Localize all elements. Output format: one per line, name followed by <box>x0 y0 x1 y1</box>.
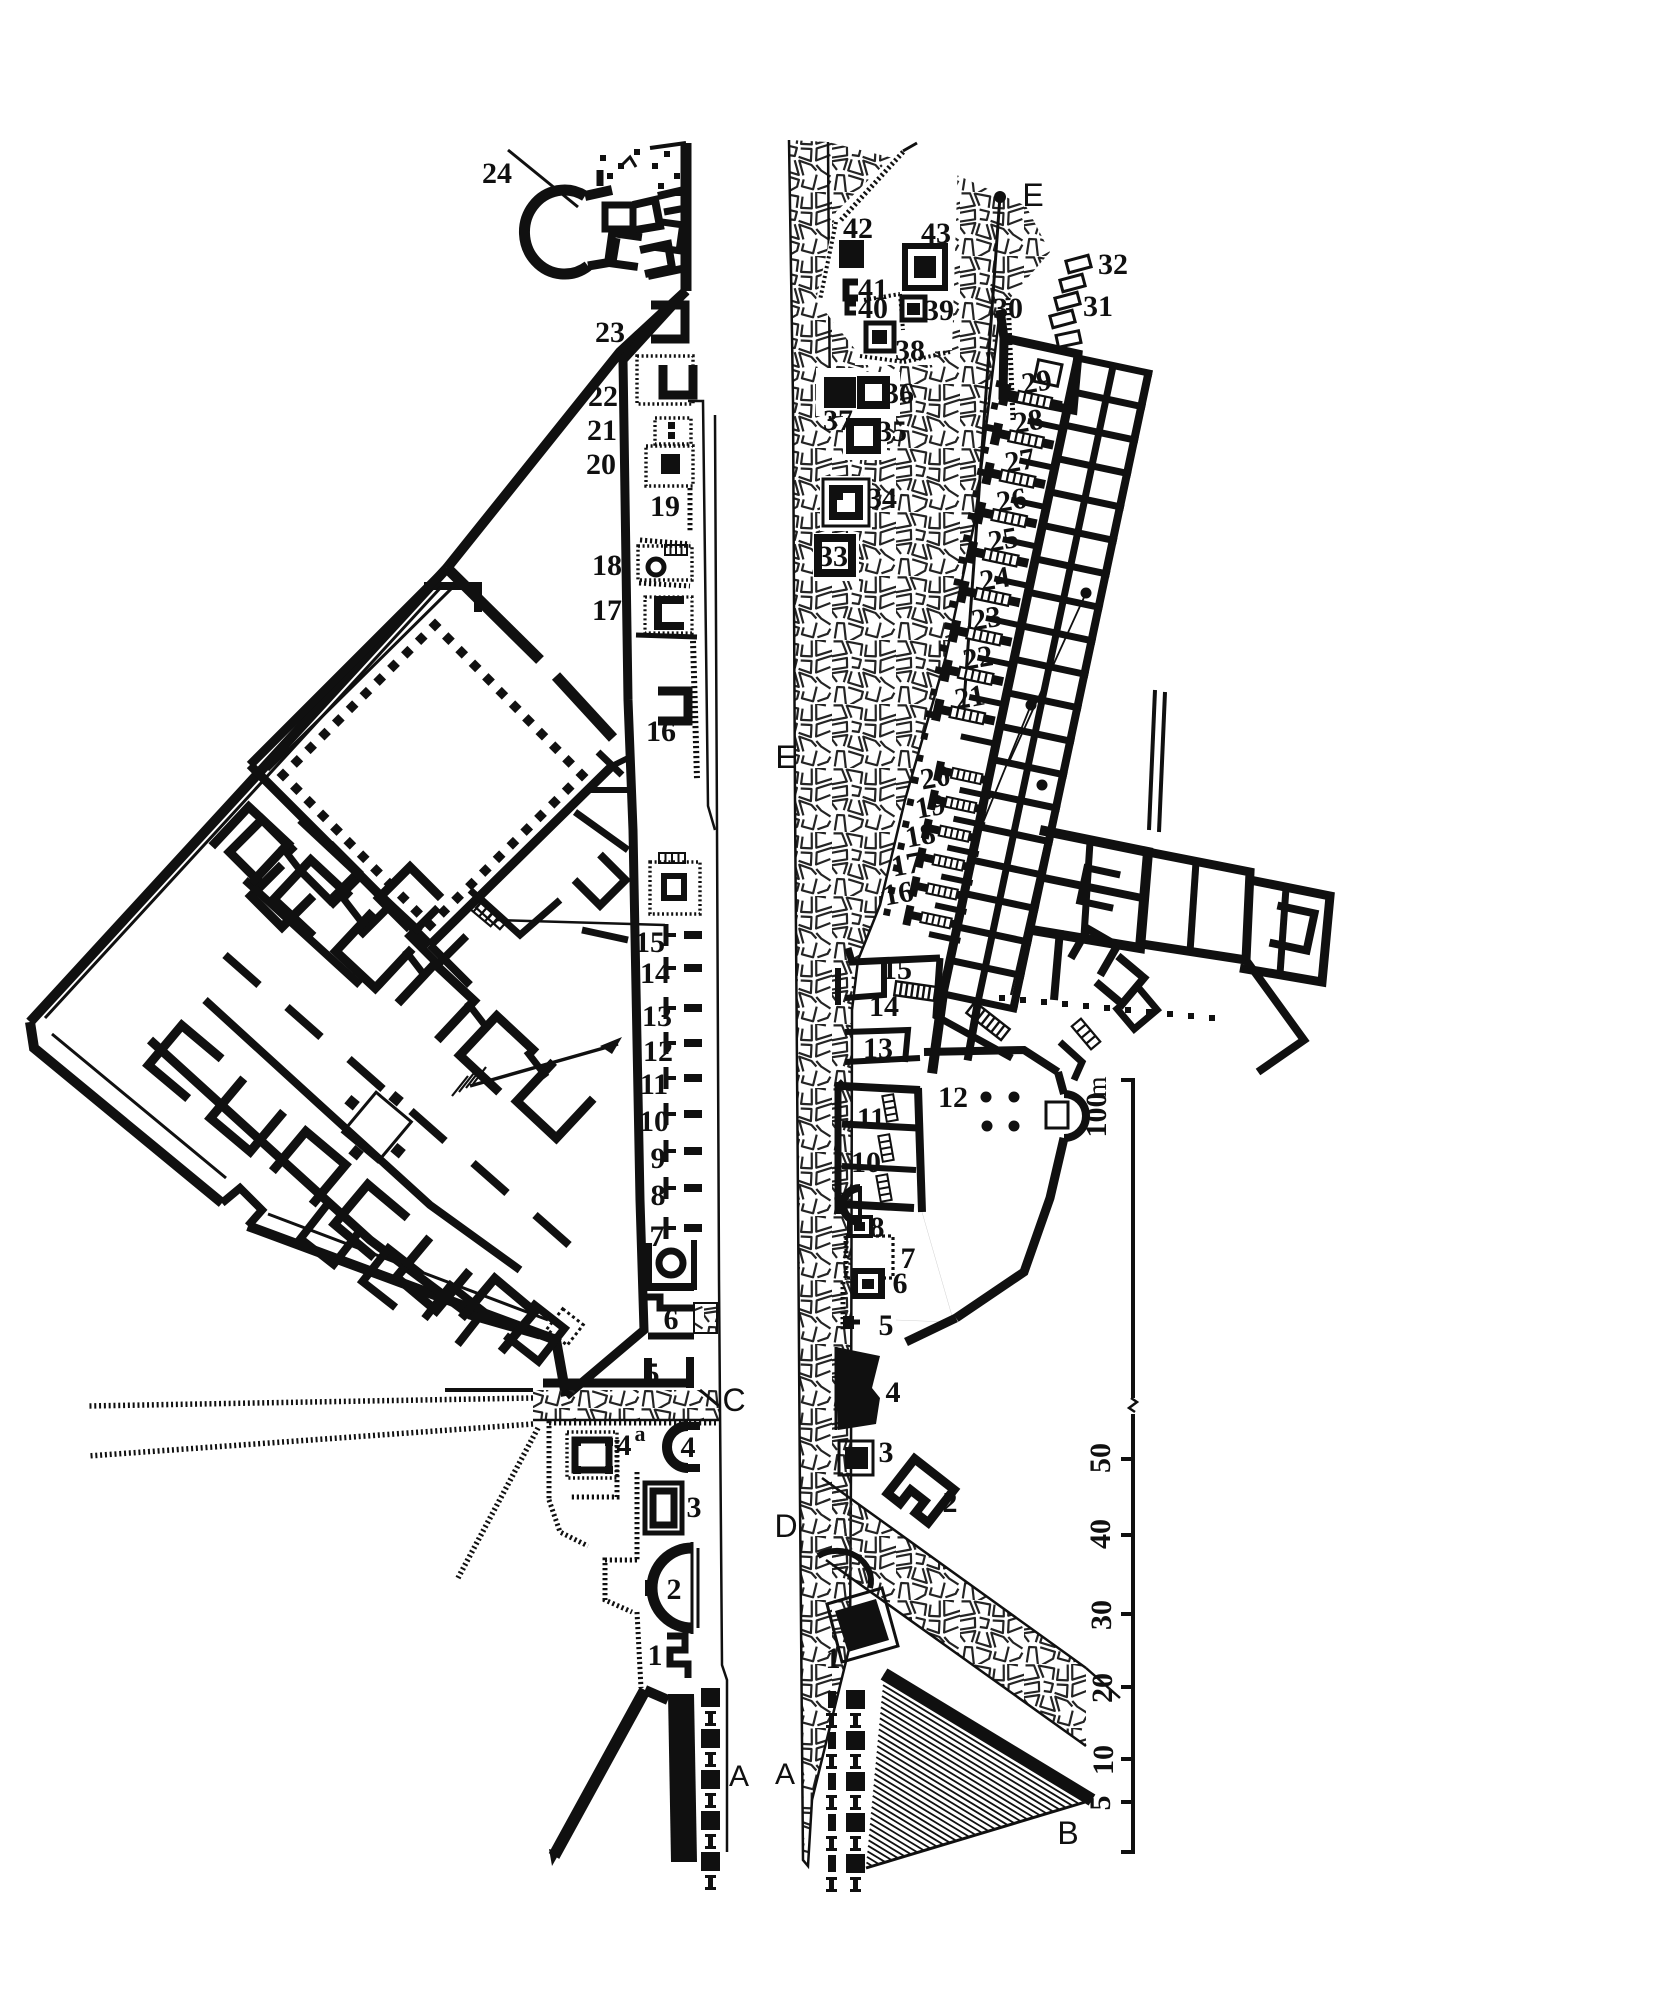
svg-text:1: 1 <box>826 1642 841 1675</box>
svg-text:100: 100 <box>1080 1093 1113 1138</box>
svg-text:23: 23 <box>969 600 1004 638</box>
svg-text:5: 5 <box>645 1357 660 1390</box>
svg-text:34: 34 <box>867 482 897 515</box>
svg-text:3: 3 <box>879 1436 894 1469</box>
svg-text:50: 50 <box>1084 1443 1117 1473</box>
svg-text:33: 33 <box>818 540 848 573</box>
svg-text:23: 23 <box>595 316 625 349</box>
svg-text:26: 26 <box>994 481 1029 519</box>
svg-text:14: 14 <box>869 990 899 1023</box>
svg-text:37: 37 <box>823 404 853 437</box>
svg-text:32: 32 <box>1098 248 1128 281</box>
svg-text:20: 20 <box>586 448 616 481</box>
svg-text:20: 20 <box>918 759 953 797</box>
svg-text:25: 25 <box>986 521 1021 559</box>
svg-text:E: E <box>775 739 796 775</box>
svg-text:A: A <box>775 1758 795 1791</box>
svg-text:9: 9 <box>651 1142 666 1175</box>
svg-text:24: 24 <box>977 560 1012 598</box>
svg-text:38: 38 <box>895 334 925 367</box>
svg-text:22: 22 <box>960 639 995 677</box>
svg-text:14: 14 <box>640 957 670 990</box>
svg-text:16: 16 <box>646 715 676 748</box>
svg-text:4: 4 <box>886 1376 901 1409</box>
svg-text:10: 10 <box>639 1105 669 1138</box>
svg-text:C: C <box>722 1382 745 1418</box>
svg-text:5: 5 <box>879 1309 894 1342</box>
svg-text:21: 21 <box>587 414 617 447</box>
svg-text:22: 22 <box>588 380 618 413</box>
svg-text:36: 36 <box>884 377 914 410</box>
svg-text:42: 42 <box>843 212 873 245</box>
svg-text:29: 29 <box>1019 363 1054 401</box>
svg-text:13: 13 <box>863 1032 893 1065</box>
svg-text:31: 31 <box>1083 290 1113 323</box>
svg-text:15: 15 <box>635 926 665 959</box>
svg-text:13: 13 <box>642 1000 672 1033</box>
svg-text:3: 3 <box>687 1491 702 1524</box>
svg-text:4: 4 <box>681 1431 696 1464</box>
svg-text:41: 41 <box>858 273 888 306</box>
svg-text:E: E <box>1022 177 1043 213</box>
svg-text:10: 10 <box>851 1146 881 1179</box>
svg-text:20: 20 <box>1086 1673 1119 1703</box>
svg-text:9: 9 <box>834 1186 849 1219</box>
svg-text:10: 10 <box>1087 1745 1120 1775</box>
svg-text:5: 5 <box>1084 1796 1117 1811</box>
svg-text:12: 12 <box>643 1035 673 1068</box>
svg-text:m: m <box>1082 1076 1112 1097</box>
svg-text:27: 27 <box>1002 442 1037 480</box>
svg-text:11: 11 <box>857 1102 885 1135</box>
svg-text:30: 30 <box>993 292 1023 325</box>
svg-text:39: 39 <box>924 294 954 327</box>
svg-text:30: 30 <box>1085 1600 1118 1630</box>
svg-text:12: 12 <box>938 1081 968 1114</box>
svg-text:D: D <box>774 1508 797 1544</box>
svg-text:43: 43 <box>921 217 951 250</box>
svg-text:B: B <box>1057 1815 1078 1851</box>
svg-text:a: a <box>635 1421 646 1446</box>
svg-text:A: A <box>729 1760 749 1793</box>
svg-text:17: 17 <box>592 594 622 627</box>
svg-text:7: 7 <box>901 1242 916 1275</box>
svg-text:21: 21 <box>952 679 987 717</box>
svg-text:18: 18 <box>592 549 622 582</box>
svg-text:19: 19 <box>650 490 680 523</box>
svg-text:2: 2 <box>667 1573 682 1606</box>
svg-text:15: 15 <box>882 953 912 986</box>
svg-text:8: 8 <box>870 1211 885 1244</box>
svg-text:24: 24 <box>482 157 512 190</box>
svg-text:7: 7 <box>650 1220 665 1253</box>
svg-text:4: 4 <box>617 1429 632 1462</box>
svg-text:2: 2 <box>943 1486 958 1519</box>
svg-text:11: 11 <box>640 1068 668 1101</box>
svg-text:28: 28 <box>1011 403 1046 441</box>
svg-text:8: 8 <box>651 1179 666 1212</box>
svg-text:35: 35 <box>877 415 907 448</box>
svg-text:6: 6 <box>664 1303 679 1336</box>
svg-text:40: 40 <box>1084 1519 1117 1549</box>
svg-text:1: 1 <box>648 1639 663 1672</box>
